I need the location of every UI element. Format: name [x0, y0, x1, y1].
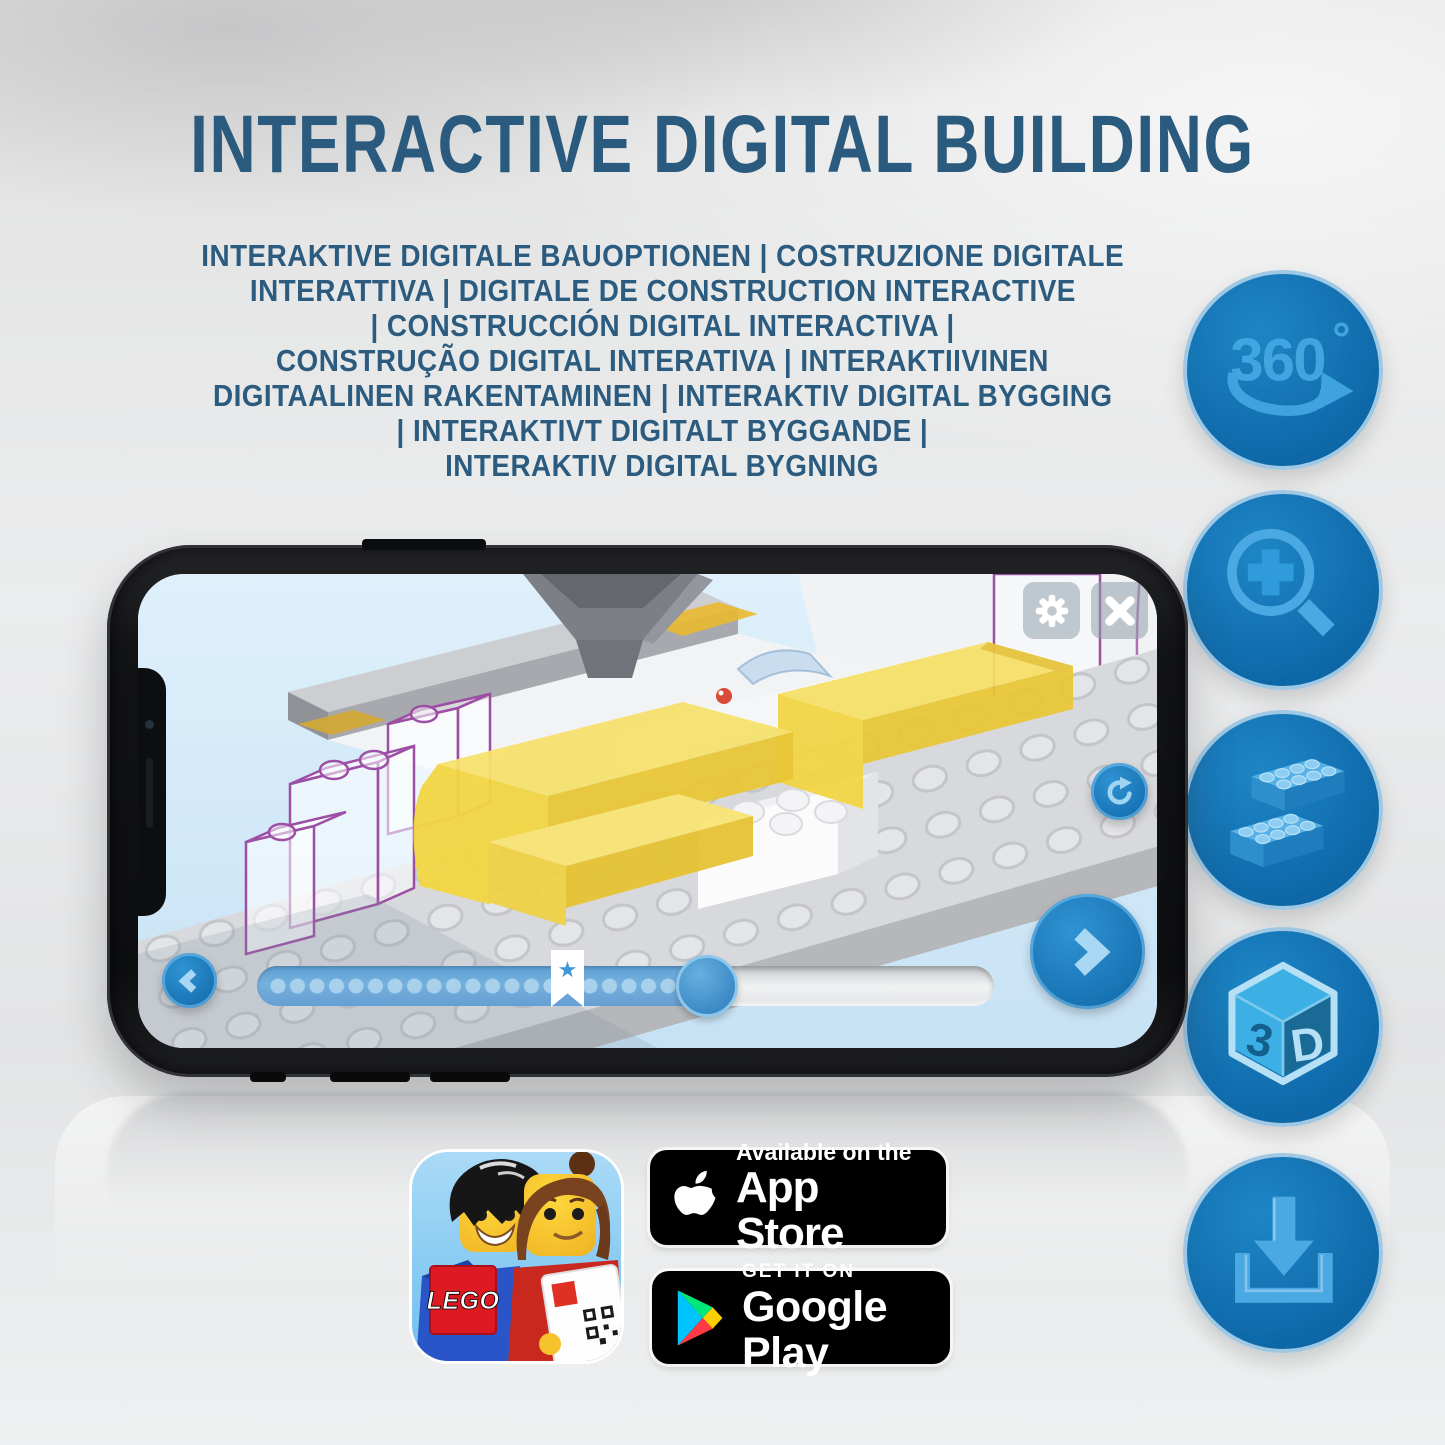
zoom-in-magnifier-icon — [1195, 502, 1371, 678]
subtitle-line: | INTERAKTIVT DIGITALT BYGGANDE | — [397, 413, 929, 448]
subtitle-line: CONSTRUÇÃO DIGITAL INTERATIVA | INTERAKT… — [276, 343, 1049, 378]
subtitle-line: INTERAKTIVE DIGITALE BAUOPTIONEN | COSTR… — [201, 238, 1124, 273]
close-button[interactable] — [1091, 582, 1148, 639]
feature-3d-view: 3 D — [1183, 927, 1383, 1127]
next-step-button[interactable] — [1030, 894, 1145, 1009]
degree-symbol: ° — [1332, 313, 1350, 364]
marketing-page: INTERACTIVE DIGITAL BUILDING INTERAKTIVE… — [0, 0, 1445, 1445]
phone-side-button — [362, 539, 486, 550]
360-rotation-icon: 360 ° — [1195, 282, 1371, 458]
google-play-badge[interactable]: GET IT ON Google Play — [652, 1271, 950, 1364]
phone-notch — [138, 668, 166, 916]
download-icon — [1195, 1165, 1371, 1341]
lego-logo-text: LEGO — [427, 1287, 500, 1315]
feature-zoom — [1183, 490, 1383, 690]
phone-speaker-slot — [330, 1072, 410, 1082]
app-screen: ★ — [138, 574, 1157, 1048]
app-store-badge[interactable]: Available on the App Store — [650, 1150, 946, 1245]
phone-speaker-slot — [250, 1072, 286, 1082]
chevron-left-icon — [175, 966, 205, 996]
multilingual-subtitle: INTERAKTIVE DIGITALE BAUOPTIONEN | COSTR… — [0, 238, 1325, 483]
phone-reflection — [107, 1092, 1188, 1252]
app-store-name: App Store — [736, 1165, 928, 1257]
subtitle-line: DIGITAALINEN RAKENTAMINEN | INTERAKTIV D… — [213, 378, 1113, 413]
rotate-icon — [1103, 775, 1137, 809]
page-title: INTERACTIVE DIGITAL BUILDING — [190, 98, 1255, 192]
cube-d-label: D — [1288, 1017, 1328, 1072]
feature-360-rotation: 360 ° — [1183, 270, 1383, 470]
subtitle-line: INTERAKTIV DIGITAL BYGNING — [446, 448, 880, 483]
lego-bricks-icon — [1195, 722, 1371, 898]
app-store-tagline: Available on the — [736, 1139, 928, 1165]
previous-step-button[interactable] — [162, 953, 217, 1008]
rotate-view-button[interactable] — [1091, 763, 1148, 820]
phone: ★ — [107, 545, 1188, 1077]
slider-thumb[interactable] — [676, 955, 738, 1017]
build-progress-slider[interactable] — [257, 966, 994, 1006]
lego-logo: LEGO — [427, 1266, 500, 1334]
360-label: 360 — [1230, 327, 1325, 394]
subtitle-line: | CONSTRUCCIÓN DIGITAL INTERACTIVA | — [370, 308, 954, 343]
phone-speaker-slot — [430, 1072, 510, 1082]
feature-download — [1183, 1153, 1383, 1353]
google-play-name: Google Play — [742, 1284, 936, 1376]
google-play-icon — [676, 1289, 726, 1347]
3d-cube-icon: 3 D — [1195, 939, 1371, 1115]
feature-brick-building — [1183, 710, 1383, 910]
slider-fill — [257, 966, 707, 1006]
front-camera — [145, 720, 154, 729]
settings-button[interactable] — [1023, 582, 1080, 639]
close-icon — [1101, 592, 1139, 630]
lego-app-icon: LEGO — [408, 1148, 625, 1365]
google-play-tagline: GET IT ON — [742, 1260, 936, 1284]
apple-icon — [672, 1169, 720, 1227]
subtitle-line: INTERATTIVA | DIGITALE DE CONSTRUCTION I… — [250, 273, 1076, 308]
gear-icon — [1033, 592, 1071, 630]
earpiece-speaker — [146, 758, 153, 828]
chevron-right-icon — [1060, 924, 1116, 980]
